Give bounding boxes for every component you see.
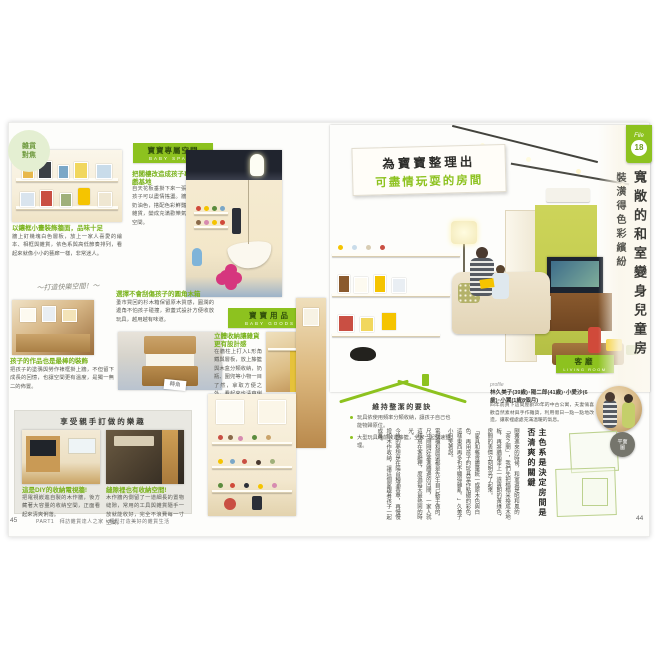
side-subtitle-vertical: 裝潢得色彩繽紛 [612, 172, 627, 322]
yellow-canister [78, 188, 90, 205]
plan-bubble-line2: 圖 [620, 445, 625, 451]
diy-box: 享受親手訂做的樂趣 這是DIY的收納電視牆! 把電視嵌進自製的木作牆，後方藏著大… [14, 410, 192, 514]
file-badge-label: File [634, 133, 644, 139]
zakka-focus-badge: 雜貨 對焦 [8, 130, 50, 172]
yellow-box [382, 313, 396, 330]
article-vertical: 主色系是決定房間是否清爽的關鍵 剛搬進來的時候，和室還是昭和風的「茶之間」，我們… [334, 428, 548, 524]
picture-frame [98, 192, 112, 207]
picture-frame [360, 317, 374, 332]
article-heading: 主色系是決定房間是否清爽的關鍵 [526, 428, 548, 524]
playroom-hammock-photo [186, 150, 282, 297]
diy-gap-storage-photo [106, 430, 184, 484]
headline-line2: 可盡情玩耍的房間 [375, 171, 483, 190]
toy-dots [196, 220, 201, 225]
toy-shelf-photo [208, 394, 296, 516]
bunny-toy [192, 248, 202, 266]
file-badge: File 18 [626, 125, 652, 163]
toy-dots [218, 459, 223, 464]
picture-frame [303, 308, 319, 326]
toy-shelf-line [212, 466, 292, 469]
file-badge-number: 18 [631, 140, 647, 156]
toy-dots [218, 435, 223, 440]
window [68, 438, 96, 454]
floor-lamp-shade [451, 221, 477, 244]
badge-line1: 雜貨 [22, 142, 36, 151]
wall-shelf [332, 333, 440, 337]
diy-left-body: 把電視嵌進自製的木作牆，後方藏著大容量的收納空間，正面看起來清爽俐落。 [22, 494, 100, 512]
left-footer-text: PART1 拜訪雜貨達人之家｜輕鬆打造美好的雜貨生活 [36, 518, 170, 525]
photo1-caption-title: 以鑲框小畫裝飾牆面，品味十足 [12, 225, 124, 233]
hammock-cord [248, 180, 249, 244]
article-paragraph: 今後的夢想是在陽台種滿香草，再慢慢增加木作收納，讓這個家跟著孩子一起成長。 [374, 428, 401, 524]
tv-picture [551, 261, 599, 287]
kids-art-wall-photo [12, 300, 94, 355]
profile-photo [596, 386, 642, 432]
toy-dots [218, 483, 223, 488]
chimney [422, 374, 429, 386]
profile-body: 四年前買下這間屋齡20年的中古公寓，夫妻倆喜歡自然素材與手作雜貨，利用假日一點一… [490, 402, 594, 425]
diy-box-title: 享受親手訂做的樂趣 [14, 416, 192, 427]
picture-frame [58, 165, 69, 179]
flower-mat [220, 270, 232, 282]
wall-canvas [216, 400, 244, 424]
chest-heading: 選擇不會刮傷孩子的圓角木箱 [116, 291, 216, 299]
left-folio: 45 [10, 517, 17, 524]
wood-edge [162, 430, 178, 484]
wall-shelf [332, 293, 450, 297]
badge-line2: 對焦 [22, 151, 36, 160]
picture-frame [40, 190, 53, 207]
tips-title: 維持整潔的要訣 [336, 402, 468, 412]
picture-frame [338, 315, 354, 332]
side-title-vertical: 寬敞的和室變身兒童房 [630, 170, 649, 370]
wall-shelf [194, 226, 228, 229]
dark-ceiling [186, 150, 282, 180]
corner-tag: 轉角 [164, 379, 187, 391]
hanging-mobile [232, 208, 241, 234]
picture-frame [20, 192, 35, 207]
toy-shelf-line [212, 442, 292, 445]
book [374, 275, 386, 293]
black-toy [252, 496, 262, 510]
wall-shelf [332, 253, 460, 257]
diy-tv-wall-photo [22, 430, 100, 484]
plan-bubble: 平面 圖 [610, 432, 635, 457]
dresser-top [16, 334, 90, 352]
baby-goods-heading: 立體收納讓雜貨更有設計感 [214, 333, 264, 349]
profile-person-head [605, 392, 615, 402]
living-room-photo: 為寶寶整理出 可盡情玩耍的房間 客廳 LIVING ROOM [330, 125, 650, 392]
toy-shelf-line [212, 490, 292, 493]
wall-canvas [258, 400, 286, 424]
chest-body: 蚤市買回的杉木箱保留原木質感，圓潤的邊角不怕孩子碰撞，掀蓋式設計方便收放玩具，越… [116, 299, 214, 329]
profile-person [603, 400, 617, 428]
hammock [227, 240, 273, 270]
picture-frame [74, 162, 88, 179]
black-kettle [350, 347, 376, 361]
photo2-caption-title: 孩子的作品也是最棒的裝飾 [10, 358, 114, 366]
picture-frame [62, 309, 77, 322]
stored-items [114, 436, 154, 446]
roof-right [397, 380, 467, 404]
chest-lid [144, 336, 196, 354]
wall-shelf [194, 212, 228, 215]
mother-figure-body [470, 258, 494, 296]
picture-frame [20, 308, 36, 322]
article-paragraph: 「家具和雜貨盡量統一成原木色與白色，再用孩子的玩具當作點綴的彩色，這樣東西再多也… [445, 428, 481, 524]
book [338, 275, 350, 293]
photo2-caption-body: 把孩子的塗鴉與勞作裱框掛上牆，不但留下成長的回憶，也讓空間更有溫度，是獨一無二的… [10, 366, 114, 394]
magazine-spread-scan: 雜貨 對焦 以鑲框小畫裝飾牆面，品味十足 牆上釘幾塊白色層板，放上一家人喜愛的繪… [0, 0, 655, 655]
article-paragraph: 電視櫃和層架都是先生自己動手做的，尺寸剛剛好塞進牆邊的凹間，一家人就這樣窩在客廳… [405, 428, 441, 524]
headline-box: 為寶寶整理出 可盡情玩耍的房間 [351, 144, 506, 196]
book [392, 278, 406, 293]
chest-interior [146, 354, 194, 366]
yellow-book [479, 278, 494, 289]
profile-label: profile [490, 382, 504, 388]
diy-right-body: 木作牆內側留了一道細長的置物縫隙，常用的工具與雜貨隨手一放就能收好，完全不浪費每… [106, 494, 184, 514]
profile-person-head [624, 394, 633, 403]
book [354, 277, 368, 293]
picture-frame [60, 193, 72, 207]
profile-person [622, 402, 635, 428]
article-paragraph: 剛搬進來的時候，和室還是昭和風的「茶之間」，我們先把榻榻米換成木地板，再將牆面漆… [484, 428, 520, 524]
tv-screen [30, 440, 56, 456]
picture-frame [96, 164, 112, 179]
photo1-caption-body: 牆上釘幾塊白色層板，放上一家人喜愛的繪本、相框與雜貨，依色系與高低節奏排列，看起… [12, 233, 122, 267]
air-conditioner [546, 188, 590, 202]
right-folio: 44 [636, 515, 643, 522]
ball-toy [224, 498, 236, 510]
toy-dots [196, 206, 201, 211]
baby-goods-body: 在牆柱上打入L形角鐵與層板，放上籐籃與木盒分類收納，奶瓶、圍兜等小物一目了然，拿… [214, 348, 262, 392]
ceiling-lamp [250, 154, 264, 176]
shelf-deco-dots [338, 245, 343, 250]
plan-room [582, 478, 608, 506]
wood-detail-photo [296, 298, 326, 448]
headline-line1: 為寶寶整理出 [382, 150, 475, 171]
roof-left [339, 380, 409, 404]
picture-frame [42, 306, 56, 322]
